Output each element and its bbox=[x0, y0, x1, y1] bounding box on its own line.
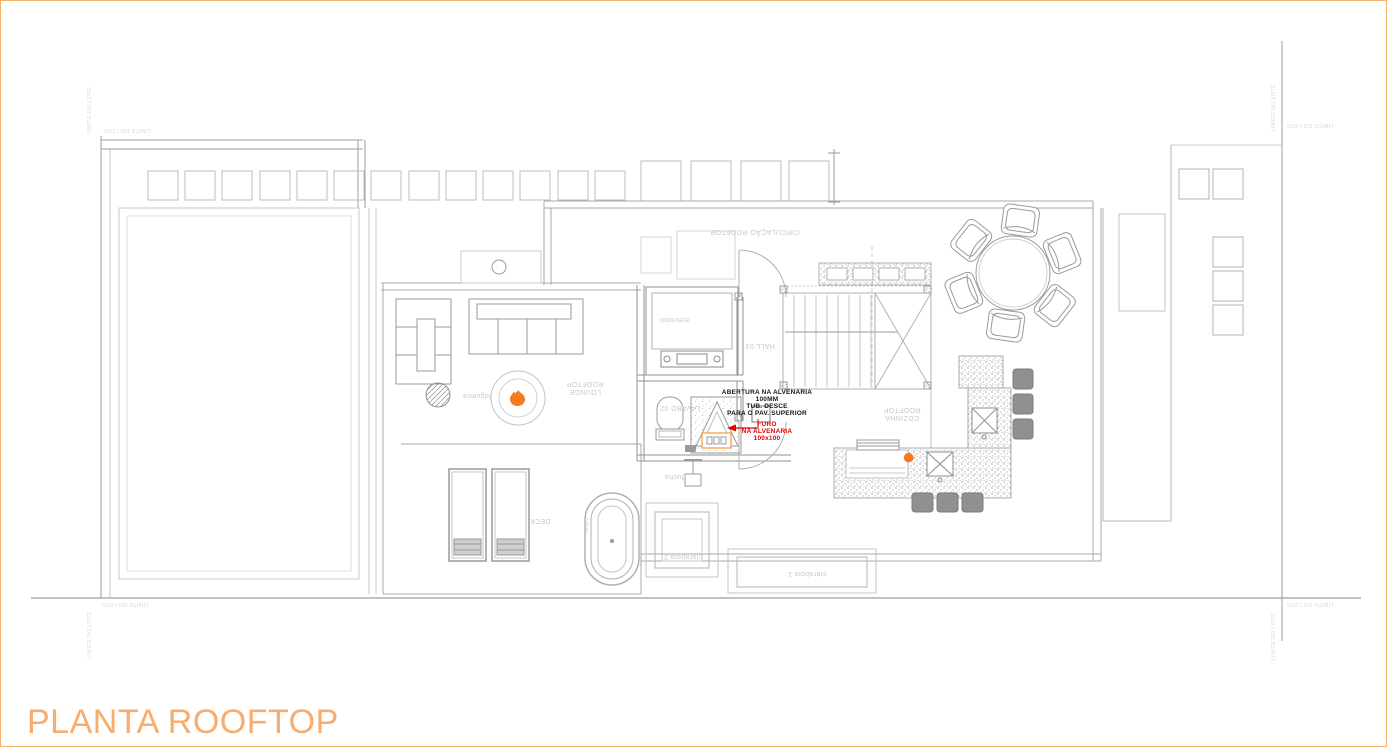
lot-boundary-lines bbox=[31, 41, 1361, 641]
stair-planter bbox=[819, 263, 931, 285]
flame-icon bbox=[510, 390, 525, 406]
label-hall-03: HALL 03 bbox=[738, 341, 782, 349]
label-elevador: elevador bbox=[646, 315, 702, 323]
pergola-beams bbox=[148, 171, 625, 200]
sofa-set bbox=[396, 299, 583, 384]
label-lavabo-02: LAVABO 02 bbox=[652, 403, 708, 411]
label-circulacao-rooftop: CIRCULAÇÃO ROOFTOP bbox=[690, 227, 820, 235]
skylight-2 bbox=[646, 503, 718, 577]
label-claraboia-1: claraboia 1 bbox=[779, 569, 835, 577]
boundary-label-top-right-h: LIMITE DO LOTE bbox=[1286, 122, 1334, 128]
skylights bbox=[646, 503, 876, 593]
label-cozinha-rooftop: COZINHA ROOFTOP bbox=[876, 405, 928, 421]
label-fogueira: fogueira bbox=[453, 391, 501, 399]
boundary-label-top-right-v: LIMITE DO LOTE bbox=[1271, 84, 1277, 132]
deck-furniture bbox=[449, 469, 639, 585]
drawing-title: PLANTA ROOFTOP bbox=[27, 703, 339, 742]
label-ofuro: ofurô bbox=[584, 517, 590, 533]
sun-lounger bbox=[449, 469, 486, 561]
hot-tub bbox=[585, 493, 639, 585]
boundary-label-bottom-left-v: LIMITE DO LOTE bbox=[87, 611, 93, 659]
left-lawn-area bbox=[119, 208, 376, 594]
kitchen-counter bbox=[834, 356, 1033, 512]
staircase bbox=[783, 246, 931, 391]
label-ducha: ducha bbox=[651, 472, 699, 480]
top-roof-elements bbox=[641, 149, 840, 279]
floor-plan-drawing bbox=[1, 1, 1387, 747]
boundary-label-top-left-v: LIMITE DO LOTE bbox=[87, 87, 93, 135]
garden-planters bbox=[1179, 169, 1243, 335]
boundary-label-bottom-right-h: LIMITE DO LOTE bbox=[1286, 601, 1334, 607]
annotation-red-text: FURO NA ALVENARIA 100x100 bbox=[705, 421, 829, 442]
label-deck: DECK bbox=[522, 516, 558, 524]
boundary-label-bottom-right-v: LIMITE DO LOTE bbox=[1271, 613, 1277, 661]
antenna-pole bbox=[828, 149, 840, 205]
grill bbox=[857, 440, 899, 450]
right-garden bbox=[1103, 145, 1243, 521]
label-lounge-rooftop: LOUNGE ROOFTOP bbox=[553, 379, 617, 395]
boundary-label-top-left-h: LIMITE DO LOTE bbox=[103, 127, 151, 133]
pillar-base bbox=[461, 251, 541, 283]
floor-plan-page: CIRCULAÇÃO ROOFTOP elevador HALL 03 LAVA… bbox=[0, 0, 1387, 747]
annotation-black-text: ABERTURA NA ALVENARIA 100MM TUB. DESCE P… bbox=[705, 389, 829, 417]
label-claraboia-2: claraboia 2 bbox=[655, 552, 711, 560]
side-table bbox=[426, 383, 450, 407]
dining-table-set bbox=[943, 203, 1083, 343]
stair-void bbox=[875, 293, 931, 389]
sun-lounger bbox=[492, 469, 529, 561]
boundary-label-bottom-left-h: LIMITE DO LOTE bbox=[101, 601, 149, 607]
elevator-car bbox=[661, 351, 723, 367]
